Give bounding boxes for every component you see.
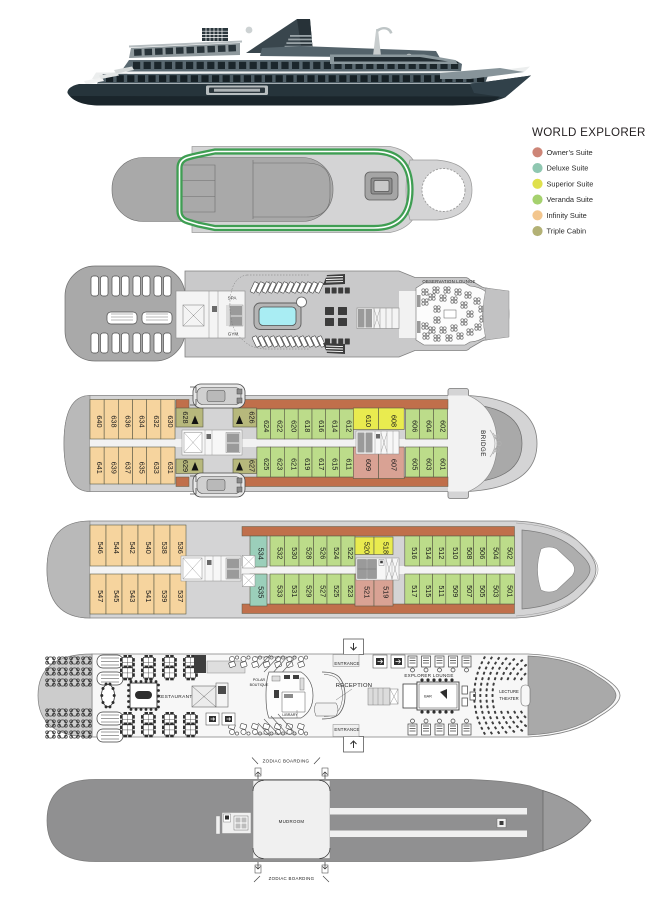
svg-text:523: 523 bbox=[346, 585, 355, 597]
svg-text:544: 544 bbox=[112, 542, 121, 554]
svg-text:621: 621 bbox=[289, 458, 298, 470]
svg-text:Owner’s Suite: Owner’s Suite bbox=[547, 148, 593, 157]
svg-text:Superior Suite: Superior Suite bbox=[547, 179, 594, 188]
svg-text:625: 625 bbox=[262, 458, 271, 470]
svg-text:543: 543 bbox=[128, 590, 137, 602]
svg-text:624: 624 bbox=[262, 420, 271, 432]
svg-text:530: 530 bbox=[290, 547, 299, 559]
svg-text:536: 536 bbox=[176, 542, 185, 554]
svg-text:525: 525 bbox=[332, 585, 341, 597]
svg-text:WORLD EXPLORER: WORLD EXPLORER bbox=[532, 126, 646, 139]
svg-text:LIBRARY: LIBRARY bbox=[282, 713, 298, 717]
svg-text:507: 507 bbox=[465, 585, 474, 597]
svg-text:641: 641 bbox=[95, 462, 104, 474]
svg-text:633: 633 bbox=[152, 462, 161, 474]
svg-text:546: 546 bbox=[96, 542, 105, 554]
svg-text:611: 611 bbox=[344, 458, 353, 470]
svg-text:640: 640 bbox=[95, 415, 104, 427]
svg-text:636: 636 bbox=[123, 415, 132, 427]
svg-text:631: 631 bbox=[166, 462, 175, 474]
svg-text:OBSERVATION LOUNGE: OBSERVATION LOUNGE bbox=[422, 279, 475, 284]
svg-text:515: 515 bbox=[424, 585, 433, 597]
svg-text:615: 615 bbox=[331, 458, 340, 470]
svg-text:622: 622 bbox=[276, 420, 285, 432]
svg-text:509: 509 bbox=[451, 585, 460, 597]
svg-text:539: 539 bbox=[160, 590, 169, 602]
svg-text:POLAR: POLAR bbox=[253, 678, 266, 682]
svg-text:512: 512 bbox=[437, 547, 446, 559]
svg-text:MUDROOM: MUDROOM bbox=[279, 819, 305, 824]
svg-text:Infinity Suite: Infinity Suite bbox=[547, 211, 587, 220]
svg-text:RECEPTION: RECEPTION bbox=[336, 683, 373, 689]
svg-text:LECTURE: LECTURE bbox=[499, 689, 519, 694]
svg-text:626: 626 bbox=[248, 411, 257, 423]
svg-text:SPA: SPA bbox=[228, 296, 238, 301]
svg-text:639: 639 bbox=[109, 462, 118, 474]
svg-text:634: 634 bbox=[138, 415, 147, 427]
svg-text:619: 619 bbox=[303, 458, 312, 470]
svg-text:516: 516 bbox=[410, 547, 419, 559]
svg-text:635: 635 bbox=[138, 462, 147, 474]
svg-text:628: 628 bbox=[181, 411, 190, 423]
svg-text:ENTRANCE: ENTRANCE bbox=[334, 727, 359, 732]
svg-text:606: 606 bbox=[411, 420, 420, 432]
svg-text:603: 603 bbox=[425, 458, 434, 470]
svg-text:610: 610 bbox=[364, 415, 373, 427]
svg-text:505: 505 bbox=[478, 585, 487, 597]
svg-text:508: 508 bbox=[465, 547, 474, 559]
svg-text:534: 534 bbox=[257, 548, 266, 560]
svg-text:638: 638 bbox=[109, 415, 118, 427]
svg-text:ENTRANCE: ENTRANCE bbox=[334, 661, 359, 666]
svg-text:547: 547 bbox=[96, 590, 105, 602]
svg-text:614: 614 bbox=[331, 420, 340, 432]
svg-text:521: 521 bbox=[363, 586, 372, 598]
svg-text:BAR: BAR bbox=[424, 695, 432, 699]
svg-text:540: 540 bbox=[144, 542, 153, 554]
svg-text:538: 538 bbox=[160, 542, 169, 554]
svg-text:632: 632 bbox=[152, 415, 161, 427]
svg-text:520: 520 bbox=[363, 542, 372, 554]
svg-text:524: 524 bbox=[332, 547, 341, 559]
svg-text:504: 504 bbox=[491, 547, 500, 559]
svg-text:527: 527 bbox=[318, 585, 327, 597]
svg-text:522: 522 bbox=[346, 547, 355, 559]
svg-text:618: 618 bbox=[303, 420, 312, 432]
svg-text:THEATER: THEATER bbox=[499, 696, 518, 701]
svg-text:ZODIAC BOARDING: ZODIAC BOARDING bbox=[263, 759, 310, 764]
svg-text:511: 511 bbox=[437, 585, 446, 597]
svg-text:623: 623 bbox=[276, 458, 285, 470]
svg-text:630: 630 bbox=[166, 415, 175, 427]
svg-text:616: 616 bbox=[317, 420, 326, 432]
svg-text:Veranda Suite: Veranda Suite bbox=[547, 195, 593, 204]
svg-text:531: 531 bbox=[290, 585, 299, 597]
svg-text:637: 637 bbox=[123, 462, 132, 474]
svg-text:609: 609 bbox=[364, 459, 373, 471]
svg-text:503: 503 bbox=[491, 585, 500, 597]
svg-text:602: 602 bbox=[439, 420, 448, 432]
svg-text:629: 629 bbox=[181, 460, 190, 472]
svg-text:608: 608 bbox=[389, 415, 398, 427]
svg-text:541: 541 bbox=[144, 590, 153, 602]
svg-text:526: 526 bbox=[318, 547, 327, 559]
svg-text:GYM: GYM bbox=[228, 332, 239, 337]
svg-text:ZODIAC BOARDING: ZODIAC BOARDING bbox=[269, 876, 315, 881]
svg-text:532: 532 bbox=[275, 547, 284, 559]
svg-text:Triple Cabin: Triple Cabin bbox=[547, 227, 587, 236]
svg-text:528: 528 bbox=[304, 547, 313, 559]
svg-text:502: 502 bbox=[505, 547, 514, 559]
svg-text:Deluxe Suite: Deluxe Suite bbox=[547, 164, 589, 173]
svg-text:535: 535 bbox=[257, 586, 266, 598]
svg-text:601: 601 bbox=[439, 458, 448, 470]
svg-text:BRIDGE: BRIDGE bbox=[479, 430, 486, 457]
svg-text:506: 506 bbox=[478, 547, 487, 559]
svg-text:607: 607 bbox=[389, 459, 398, 471]
svg-text:514: 514 bbox=[424, 547, 433, 559]
svg-text:519: 519 bbox=[382, 586, 391, 598]
svg-text:627: 627 bbox=[248, 460, 257, 472]
svg-text:517: 517 bbox=[410, 585, 419, 597]
svg-text:537: 537 bbox=[176, 590, 185, 602]
svg-text:604: 604 bbox=[425, 420, 434, 432]
svg-text:501: 501 bbox=[505, 585, 514, 597]
svg-text:620: 620 bbox=[289, 420, 298, 432]
svg-text:RESTAURANT: RESTAURANT bbox=[157, 694, 192, 700]
svg-text:518: 518 bbox=[382, 542, 391, 554]
svg-text:BOUTIQUE: BOUTIQUE bbox=[250, 683, 269, 687]
svg-text:542: 542 bbox=[128, 542, 137, 554]
svg-text:EXPLORER LOUNGE: EXPLORER LOUNGE bbox=[404, 673, 453, 678]
svg-text:533: 533 bbox=[275, 585, 284, 597]
svg-text:617: 617 bbox=[317, 458, 326, 470]
svg-text:545: 545 bbox=[112, 590, 121, 602]
svg-text:510: 510 bbox=[451, 547, 460, 559]
svg-text:605: 605 bbox=[411, 458, 420, 470]
svg-text:612: 612 bbox=[344, 420, 353, 432]
svg-text:529: 529 bbox=[304, 585, 313, 597]
